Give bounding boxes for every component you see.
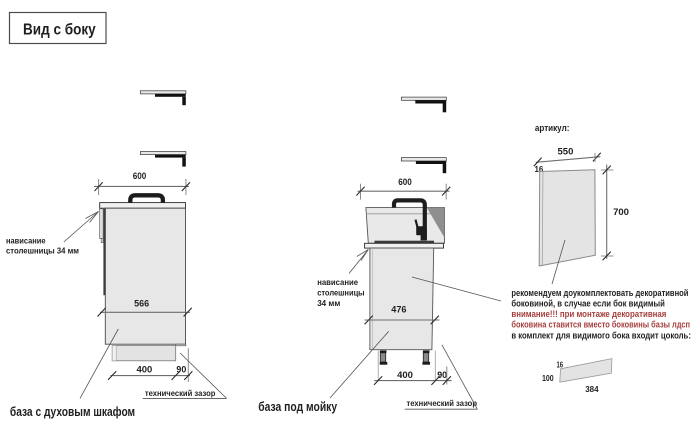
svg-text:технический зазор: технический зазор [145,389,216,398]
svg-text:артикул:: артикул: [535,123,570,133]
svg-text:база с духовым шкафом: база с духовым шкафом [10,404,135,419]
svg-text:400: 400 [397,369,413,380]
svg-text:нависание: нависание [317,278,358,287]
svg-text:16: 16 [557,360,564,370]
svg-text:боковина ставится вместо боков: боковина ставится вместо боковины базы л… [511,320,690,330]
svg-text:34 мм: 34 мм [317,299,340,308]
svg-text:столешницы: столешницы [317,289,364,298]
svg-text:476: 476 [391,304,406,315]
svg-text:нависание: нависание [6,236,46,245]
svg-text:внимание!!! при монтаже декора: внимание!!! при монтаже декоративная [511,309,666,319]
svg-text:технический зазор: технический зазор [407,399,478,408]
svg-text:рекомендуем доукомплектовать д: рекомендуем доукомплектовать декоративно… [511,288,688,298]
svg-text:боковиной, в случае если бок в: боковиной, в случае если бок видимый [511,298,665,308]
svg-text:90: 90 [437,369,447,380]
svg-text:база под мойку: база под мойку [258,399,338,414]
svg-text:Вид с боку: Вид с боку [23,22,96,39]
svg-text:400: 400 [137,364,153,375]
svg-text:столешницы 34 мм: столешницы 34 мм [6,247,79,256]
svg-text:в комплект для видимого бока в: в комплект для видимого бока входит цоко… [511,330,691,340]
svg-text:600: 600 [398,176,412,187]
svg-text:700: 700 [613,206,629,217]
svg-text:100: 100 [542,373,554,383]
svg-text:566: 566 [134,297,149,308]
svg-text:600: 600 [133,170,147,181]
svg-text:90: 90 [176,364,186,375]
svg-text:384: 384 [585,384,599,394]
svg-text:550: 550 [558,145,574,156]
